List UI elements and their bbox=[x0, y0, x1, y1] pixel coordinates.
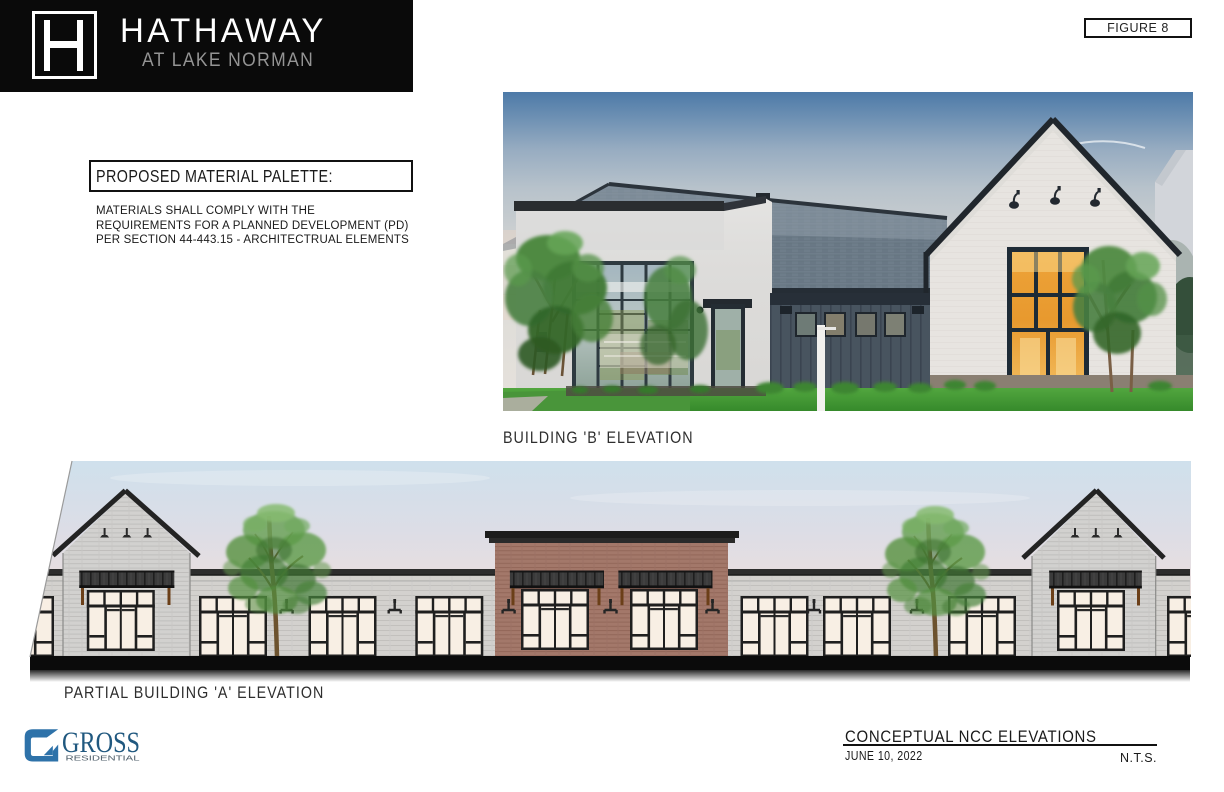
svg-text:RESIDENTIAL: RESIDENTIAL bbox=[66, 754, 140, 763]
